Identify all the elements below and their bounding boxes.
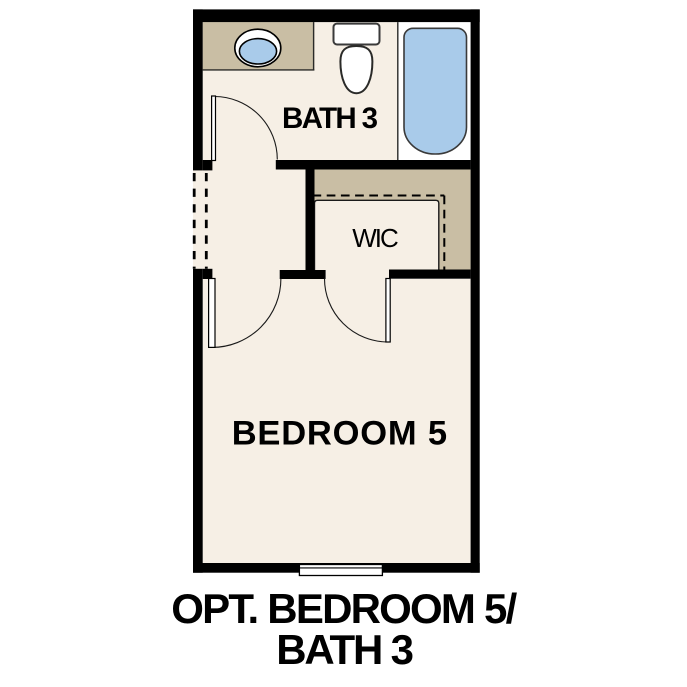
svg-text:BEDROOM 5: BEDROOM 5 — [232, 415, 447, 453]
svg-text:BATH 3: BATH 3 — [276, 626, 414, 673]
svg-text:WIC: WIC — [352, 223, 399, 253]
svg-text:BATH 3: BATH 3 — [282, 102, 378, 135]
